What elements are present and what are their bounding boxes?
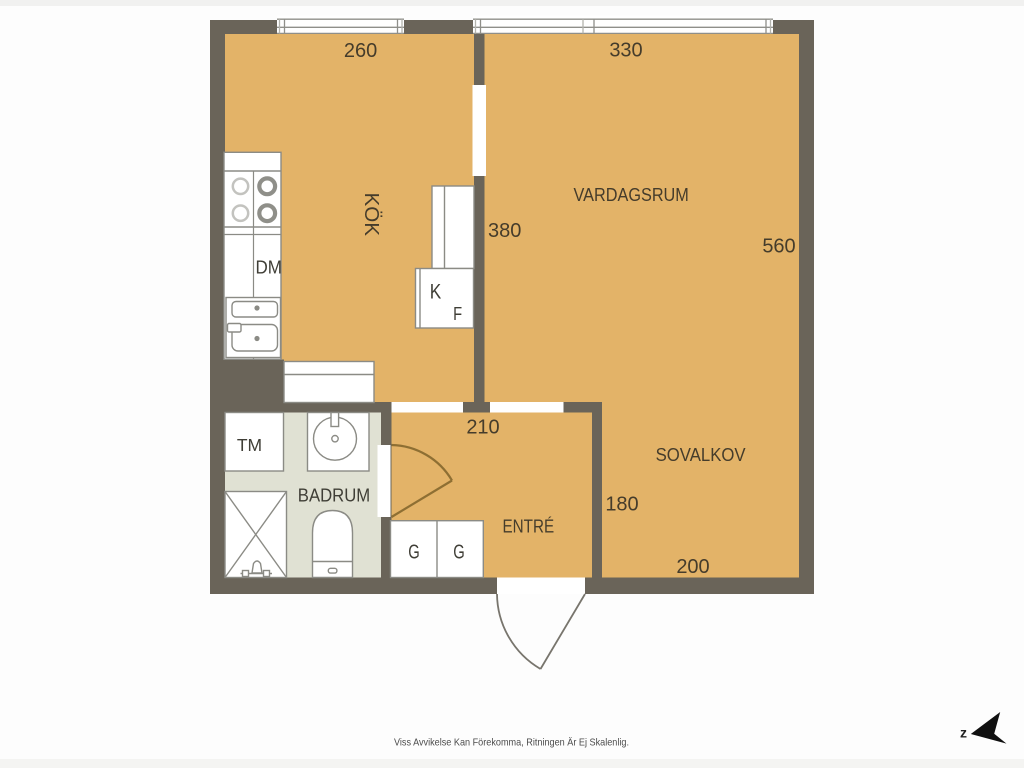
svg-text:180: 180 [605,493,638,515]
svg-text:K: K [430,281,442,304]
svg-text:Viss Avvikelse Kan Förekomma,: Viss Avvikelse Kan Förekomma, Ritningen … [394,737,629,749]
svg-text:KÖK: KÖK [360,193,382,237]
svg-text:210: 210 [466,417,499,439]
svg-text:330: 330 [609,39,642,61]
svg-text:VARDAGSRUM: VARDAGSRUM [574,184,689,205]
svg-text:380: 380 [488,220,521,242]
svg-text:260: 260 [344,40,377,62]
svg-text:560: 560 [762,236,795,258]
svg-text:DM: DM [255,258,282,278]
svg-text:SOVALKOV: SOVALKOV [656,444,747,465]
svg-text:F: F [453,303,462,324]
svg-text:TM: TM [237,435,262,455]
svg-text:200: 200 [676,556,709,578]
svg-text:ENTRÉ: ENTRÉ [503,516,555,537]
svg-text:G: G [408,541,420,563]
svg-text:z: z [960,725,967,741]
svg-text:BADRUM: BADRUM [298,485,370,506]
svg-text:G: G [453,541,465,563]
